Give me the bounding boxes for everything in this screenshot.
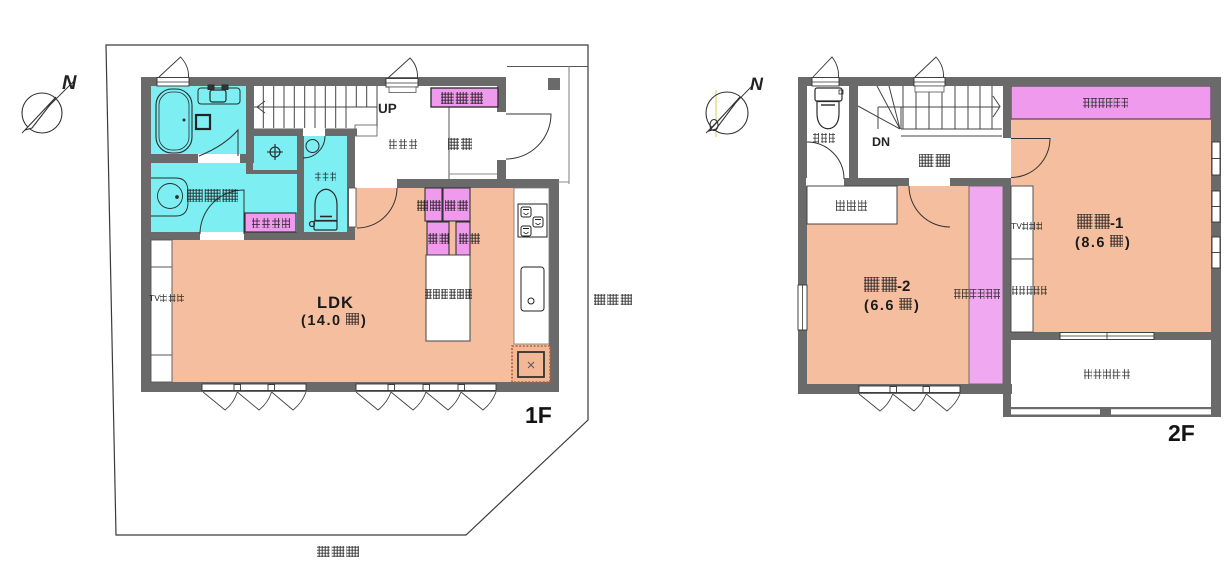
- svg-text:-2: -2: [897, 278, 910, 295]
- svg-text:1F: 1F: [525, 402, 552, 428]
- svg-text:N: N: [750, 74, 764, 94]
- svg-text:-1: -1: [1110, 215, 1123, 232]
- svg-text:(6.6: (6.6: [864, 298, 895, 314]
- svg-text:2F: 2F: [1168, 420, 1195, 446]
- svg-text:DN: DN: [872, 135, 890, 149]
- svg-text:LDK: LDK: [317, 294, 354, 312]
- svg-text:(14.0: (14.0: [301, 313, 342, 329]
- svg-text:TV: TV: [149, 293, 160, 303]
- svg-text:TV: TV: [1011, 221, 1022, 231]
- svg-text:(8.6: (8.6: [1075, 235, 1106, 251]
- svg-text:): ): [914, 298, 919, 314]
- svg-text:): ): [1125, 235, 1130, 251]
- svg-text:UP: UP: [378, 101, 397, 116]
- svg-text:N: N: [62, 72, 77, 94]
- svg-text:): ): [361, 313, 366, 329]
